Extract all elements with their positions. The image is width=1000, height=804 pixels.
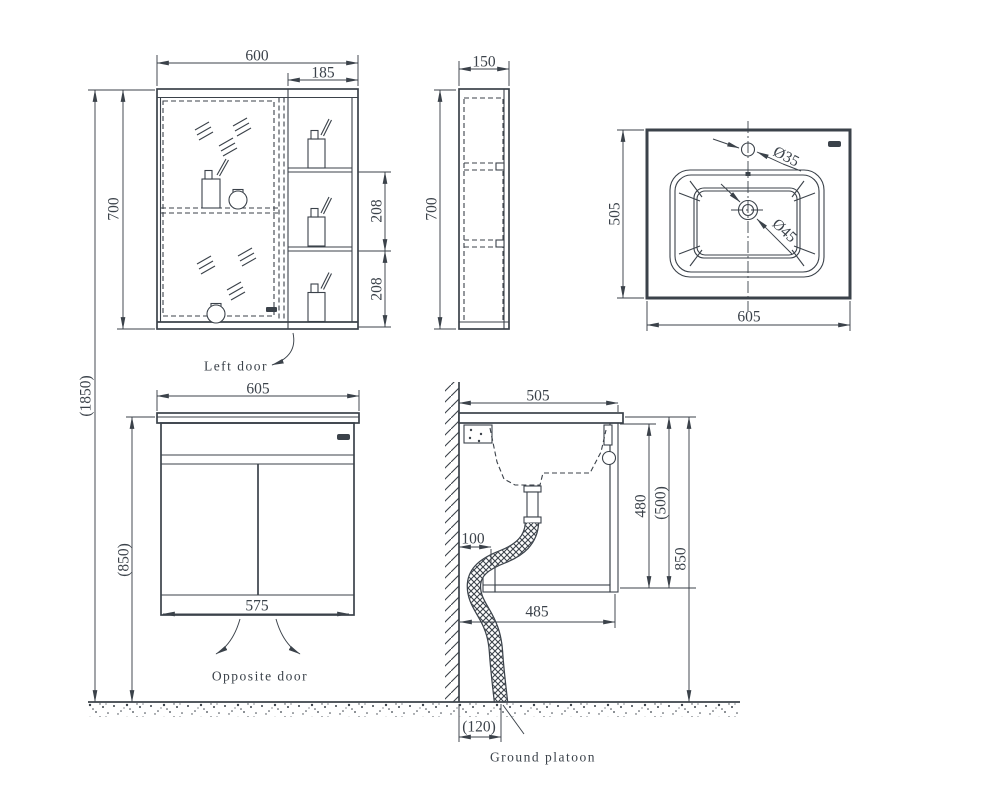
technical-drawing-canvas xyxy=(0,0,1000,804)
basin-hidden-profile xyxy=(490,428,606,485)
basin-corner-chamfers xyxy=(679,181,815,266)
dim-mirror-shelf-width: 185 xyxy=(311,65,334,81)
bottom-panel-section xyxy=(495,585,610,592)
dim-basin-depth: 505 xyxy=(607,202,623,225)
door-handle xyxy=(266,307,277,312)
mirror-cabinet-side-view xyxy=(434,61,509,329)
brand-logo xyxy=(828,141,841,147)
dim-side-depth: 150 xyxy=(472,54,495,70)
dim-bottom-depth: 485 xyxy=(525,604,548,620)
dim-mirror-width: 600 xyxy=(245,48,268,64)
technical-drawing-page: 600 185 700 (1850) 208 208 Left door 150… xyxy=(0,0,1000,804)
dim-overall-height: (1850) xyxy=(78,375,94,416)
dim-wall-clearance: 100 xyxy=(461,531,484,547)
toothbrush-cup-icon xyxy=(308,119,332,168)
dim-worktop-height: 850 xyxy=(673,547,689,570)
dim-cabinet-depth: (500) xyxy=(653,486,669,520)
label-ground-platoon: Ground platoon xyxy=(490,750,596,764)
countertop-section xyxy=(459,413,623,423)
mirror-sparkle-icon xyxy=(195,118,256,300)
side-panel-section xyxy=(610,423,618,592)
dim-shelf-gap-upper: 208 xyxy=(369,199,385,222)
jar-icon xyxy=(207,304,225,324)
wall-bracket xyxy=(464,425,492,443)
ground-stipple xyxy=(88,703,740,717)
basin-top-view xyxy=(617,121,850,331)
dim-basin-width: 605 xyxy=(737,309,760,325)
dim-cabinet-inner-height: 480 xyxy=(633,494,649,517)
label-left-door: Left door xyxy=(204,359,268,373)
dim-side-height: 700 xyxy=(424,197,440,220)
installation-section-view xyxy=(445,382,696,742)
wall-hatch xyxy=(445,382,459,702)
vanity-front-view xyxy=(126,390,359,702)
dimension-lines xyxy=(88,55,391,702)
dimension-lines xyxy=(617,130,850,331)
toothbrush-cup-icon xyxy=(202,159,229,208)
drain-tailpiece xyxy=(524,486,541,523)
flexible-drain-hose xyxy=(474,523,532,702)
dim-shelf-gap-lower: 208 xyxy=(369,277,385,300)
door-swing-arrow xyxy=(216,619,240,654)
dim-vanity-height: (850) xyxy=(116,543,132,577)
hinge-hardware xyxy=(604,425,612,445)
dim-drain-offset: (120) xyxy=(462,719,496,735)
floor xyxy=(88,702,740,717)
dim-mirror-height: 700 xyxy=(106,197,122,220)
toothbrush-cup-icon xyxy=(308,197,332,246)
dim-vanity-width: 605 xyxy=(246,381,269,397)
door-swing-arrow xyxy=(276,619,300,654)
left-door-leader-arrow xyxy=(272,333,294,365)
brand-logo xyxy=(337,434,350,440)
basin-rim xyxy=(670,170,824,277)
overflow-mark xyxy=(746,172,751,176)
countertop xyxy=(157,413,359,423)
dim-door-width: 575 xyxy=(245,598,268,614)
toothbrush-cup-icon xyxy=(308,273,332,322)
jar-icon xyxy=(229,190,247,210)
mirror-cabinet-front-view xyxy=(88,55,391,702)
label-opposite-door: Opposite door xyxy=(212,669,308,683)
dimension-lines xyxy=(434,61,509,329)
dim-section-top-depth: 505 xyxy=(526,388,549,404)
